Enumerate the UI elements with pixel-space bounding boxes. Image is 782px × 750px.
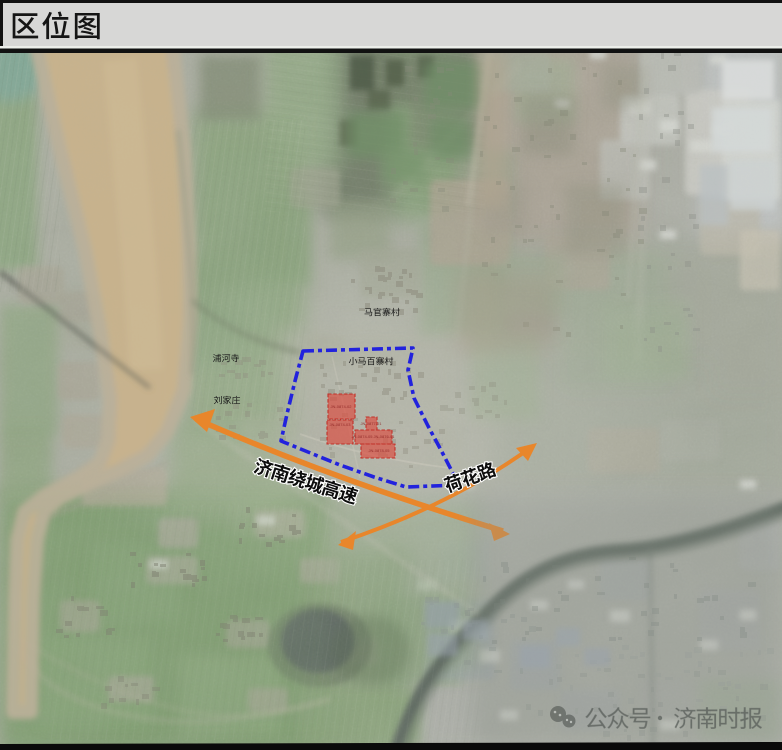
svg-text:JN-0874-02: JN-0874-02	[331, 404, 353, 409]
svg-text:JN-0874-05: JN-0874-05	[352, 434, 374, 439]
svg-text:JN-0877-01: JN-0877-01	[361, 421, 383, 426]
svg-text:JN-0878-05: JN-0878-05	[369, 448, 391, 453]
svg-text:JN-0876-01: JN-0876-01	[374, 434, 396, 439]
svg-text:JN-0874-03: JN-0874-03	[330, 422, 352, 427]
